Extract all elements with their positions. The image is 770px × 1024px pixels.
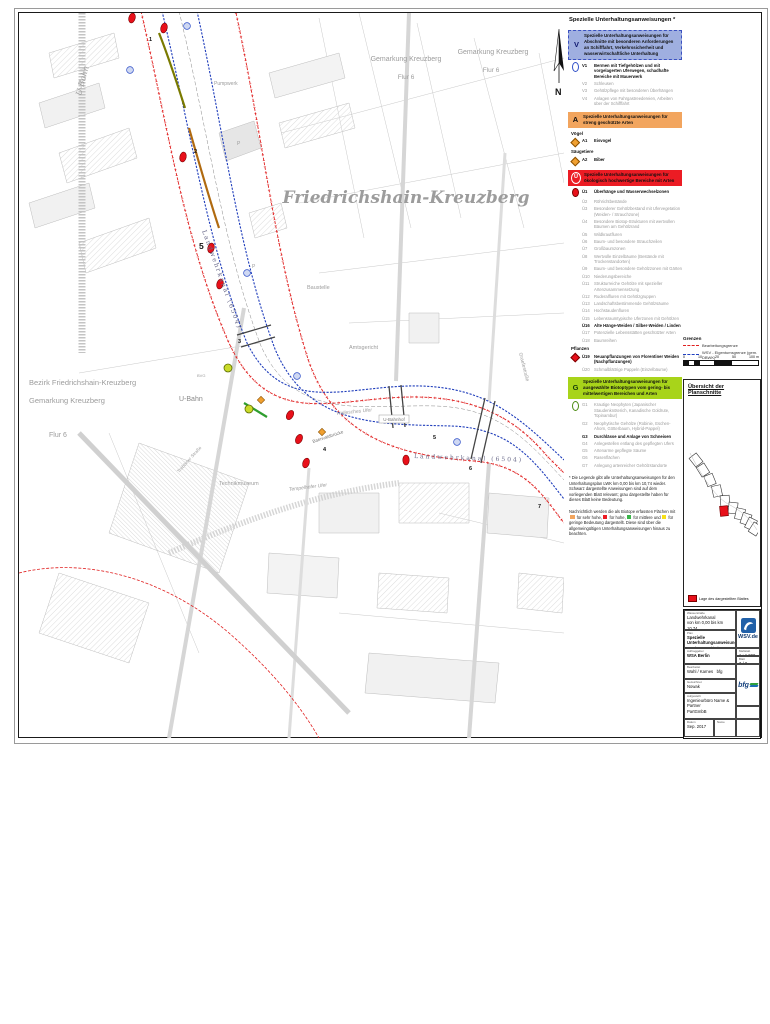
gemarkung-label: Gemarkung Kreuzberg — [29, 396, 105, 405]
km-number-large: 5 — [199, 241, 204, 251]
legend-item: G6Rasenflächen — [582, 455, 682, 461]
legend-item: G3Durchlässe und Anlage von Schneisen — [582, 434, 682, 440]
legend-item: Ü17Potenzielle Lebensstätten geschützter… — [582, 330, 682, 336]
street-label: Hallesches Ufer — [337, 407, 373, 417]
wsv-logo-cell: WSV.de — [736, 610, 760, 648]
gemarkung-label: Gemarkung Kreuzberg — [371, 56, 442, 63]
legend-section-v-banner: V Spezielle Unterhaltungsanweisungen für… — [568, 30, 682, 60]
ue-marker — [285, 409, 296, 421]
legend-item: Ü9Baum- und besondere Gehölzzonen mit Gä… — [582, 266, 682, 272]
ue-marker — [160, 22, 169, 33]
plants-heading: Pflanzen — [571, 346, 682, 352]
bezirk-label: Bezirk Friedrichshain-Kreuzberg — [29, 378, 136, 387]
red-boundary-line-icon — [683, 345, 699, 346]
biber-marker — [224, 364, 232, 372]
legend-item: G1Krautige Neophyten (Japanischer Staude… — [571, 402, 682, 419]
biber-marker — [245, 405, 253, 413]
red-oval-icon — [571, 189, 580, 197]
flur-label: Flur 6 — [49, 432, 67, 439]
orange-diamond-icon — [571, 138, 580, 146]
km-number: 2 — [194, 149, 197, 155]
empty-cell — [736, 706, 760, 719]
ubahn-label: U-Bahn — [179, 396, 203, 403]
plan-sheet: 1 2 5 3 4 5 6 7 Friedrichshain-Kreuzberg… — [14, 8, 768, 744]
bvg-label: BVG — [197, 373, 205, 378]
legend-item: Ü1Überhänge und Wasserwechselzonen — [571, 189, 682, 197]
technikmuseum-label: Technikmuseum — [219, 481, 259, 487]
name-cell: Name — [714, 719, 736, 737]
blue-ref-marker — [184, 23, 191, 30]
plan-cell: Plan Spezielle Unterhaltungsanweisungen … — [684, 630, 736, 648]
wsv-logo-text: WSV.de — [738, 634, 758, 640]
ubahnhof-box: U-Bahnhof — [379, 415, 409, 423]
legend-item: Ü12Ruderalfluren mit Gehölzgruppen — [582, 294, 682, 300]
canal-label: Landwehrkanal (6504) — [200, 229, 243, 330]
legend-item: G2Neophytische Gehölze (Robinie, Eschen-… — [582, 421, 682, 432]
empty-cell — [736, 719, 760, 737]
blue-ref-marker — [127, 67, 134, 74]
parking-label: P — [252, 264, 256, 270]
v-banner-text: Spezielle Unterhaltungsanweisungen für A… — [584, 33, 678, 57]
segment-olive — [159, 33, 185, 108]
scale-bar: 010 2050 100 m — [683, 355, 759, 366]
ubahnhof-label: U-Bahnhof — [383, 417, 405, 422]
a-banner-text: Spezielle Unterhaltungsanweisungen für s… — [583, 114, 679, 126]
legend-item: Ü15Lebensraumtypische Uferzonen mit Gehö… — [582, 316, 682, 322]
green-ellipse-icon — [571, 402, 580, 410]
legend-item: Ü2Röhrichtbestände — [582, 199, 682, 205]
legend-item: Ü4Besondere Biotop-Strukturen mit wertvo… — [582, 219, 682, 230]
grenzen-title: Grenzen — [683, 336, 761, 341]
legend-item: Ü5Wildkrautfluren — [582, 232, 682, 238]
ue-banner-text: Spezielle Unterhaltungsanweisungen für ö… — [584, 172, 679, 184]
current-sheet-marker — [719, 506, 728, 517]
ue-section-icon: Ü — [571, 172, 581, 184]
g-section-icon: G — [571, 383, 580, 394]
legend-item: G5Artenarme gepflegte Säume — [582, 448, 682, 454]
red-chip-icon — [603, 515, 608, 519]
a-section-icon: A — [571, 114, 580, 125]
baustelle-label: Baustelle — [307, 285, 330, 291]
flur-label: Flur 6 — [398, 74, 415, 81]
legend-item: Ü19Neuanpflanzungen von Florentiner Weid… — [571, 354, 682, 365]
edited-cell: Bearbeitet Wahl / Karnes bfg — [684, 664, 736, 679]
km-number: 7 — [538, 504, 541, 510]
legend-section-g-banner: G Spezielle Unterhaltungsanweisungen für… — [568, 377, 682, 399]
district-label: Friedrichshain-Kreuzberg — [282, 188, 530, 208]
v-section-icon: V — [572, 39, 581, 50]
waterway-cell: Wasserstraße Landwehrkanal von km 0,00 b… — [684, 610, 736, 630]
bfg-logo-cell: bfg — [736, 664, 760, 706]
legend-item: Ü18Baumreihen — [582, 338, 682, 344]
overview-minimap — [684, 398, 758, 583]
legend-item: G7Anlegung artenreicher Gehölzstandorte — [582, 463, 682, 469]
legend-title: Spezielle Unterhaltungsanweisungen * — [569, 17, 682, 25]
a-group-heading: Vögel — [571, 131, 682, 137]
blue-ref-marker — [294, 373, 301, 380]
scale-cell: Maßstab 1 : 1.000 — [736, 648, 760, 656]
red-diamond-icon — [571, 354, 580, 362]
ue-marker — [179, 151, 187, 162]
ue-marker — [301, 457, 310, 469]
eisvogel-marker — [257, 396, 264, 403]
km-number: 3 — [238, 339, 241, 345]
canal-edge-south — [197, 13, 564, 499]
north-arrow: N — [554, 29, 564, 97]
right-column: Grenzen Bearbeitungsgrenze WSV - Eigentu… — [683, 13, 761, 737]
drawn-cell: Gezeichnet Nowak — [684, 679, 736, 693]
green-chip-icon — [627, 515, 632, 519]
canal-label: Landwehrkanal (6504) — [414, 453, 523, 464]
firm-cell: Aufgestellt Ingenieurbüro Name & Partner… — [684, 693, 736, 719]
wsv-logo-icon — [741, 618, 756, 633]
legend-item: G4Anlegestellen entlang des gepflegten U… — [582, 441, 682, 447]
orange-diamond-icon — [571, 157, 580, 165]
legend-item: Ü14Hochstaudenfluren — [582, 308, 682, 314]
orange-chip-icon — [570, 515, 575, 519]
legend-section-ue-banner: Ü Spezielle Unterhaltungsanweisungen für… — [568, 170, 682, 186]
blue-ref-marker — [454, 439, 461, 446]
legend-item: Ü13Landschaftsbestimmende Gehölzsäume — [582, 301, 682, 307]
legend-item: Ü16Alte Hänge-Weiden / Silber-Weiden / L… — [582, 323, 682, 329]
bridge-label: Baerwaldbrücke — [312, 429, 345, 444]
legend-item: A1Eisvogel — [571, 138, 682, 146]
km-number: 5 — [433, 435, 436, 441]
legend-section-a-banner: A Spezielle Unterhaltungsanweisungen für… — [568, 112, 682, 128]
legend-item: Ü10Niederungsbereiche — [582, 274, 682, 280]
legend-item: Ü8Wertvolle Einzelbäume (Bestände mit Tr… — [582, 254, 682, 265]
bfg-logo-text: bfg — [738, 682, 749, 689]
legend-item: V4Anlagen von Fahrgastreedereien, Arbeit… — [582, 96, 682, 107]
segment-brown — [189, 128, 219, 228]
a-group-heading: Säugetiere — [571, 149, 682, 155]
sheet-cell: Blatt 3 / 8 — [736, 656, 760, 664]
legend-item: Ü6Baum- und besondere Strauchzeilen — [582, 239, 682, 245]
legend-item: A2Biber — [571, 157, 682, 165]
red-sheet-chip-icon — [688, 595, 697, 602]
street-label: Graefestraße — [517, 352, 530, 382]
blue-ref-marker — [244, 270, 251, 277]
legend-item: V3Gehölzpflege mit besonderen Überhängen — [582, 88, 682, 94]
legend-item: Ü7Großbaumzonen — [582, 246, 682, 252]
km-number: 6 — [469, 466, 472, 472]
north-label: N — [555, 87, 562, 97]
ue-marker — [128, 13, 137, 24]
legend-note: Nachrichtlich werden die als Biotope erf… — [569, 509, 681, 537]
legend-item: V2Schleusen — [582, 81, 682, 87]
title-block: Wasserstraße Landwehrkanal von km 0,00 b… — [683, 609, 761, 739]
overview-note: Lage des dargestellten Blattes — [688, 595, 749, 602]
legend: Spezielle Unterhaltungsanweisungen * V S… — [568, 15, 682, 731]
km-number: 4 — [323, 447, 327, 453]
km-number: 1 — [149, 37, 152, 43]
map-canvas: 1 2 5 3 4 5 6 7 Friedrichshain-Kreuzberg… — [19, 13, 564, 738]
map-labels: Friedrichshain-Kreuzberg Gemarkung Kreuz… — [29, 49, 530, 493]
plan-frame: 1 2 5 3 4 5 6 7 Friedrichshain-Kreuzberg… — [18, 12, 762, 738]
scale-bar-segments — [683, 360, 759, 366]
gemarkung-label: Gemarkung Kreuzberg — [458, 49, 529, 56]
overview-title: Übersicht der Planschnitte — [688, 384, 756, 396]
amtsgericht-label: Amtsgericht — [349, 345, 379, 351]
ue-marker — [294, 433, 304, 445]
legend-footnote: * Die Legende gibt alle Unterhaltungsanw… — [569, 475, 681, 503]
grenzen-row: Bearbeitungsgrenze — [683, 343, 761, 348]
date-cell: Datum Sep. 2017 — [684, 719, 714, 737]
flur-label: Flur 6 — [483, 67, 500, 74]
overview-panel: Übersicht der Planschnitte Lage des darg… — [683, 379, 761, 607]
client-cell: Auftraggeber WSA Berlin — [684, 648, 736, 664]
pumpwerk-label: Pumpwerk — [214, 81, 238, 87]
bfg-logo-icon — [750, 683, 758, 688]
yellow-chip-icon — [662, 515, 667, 519]
legend-item: Ü3Besonderer Gehölzbestand mit Uferveget… — [582, 206, 682, 217]
ue-marker — [403, 455, 409, 465]
g-banner-text: Spezielle Unterhaltungsanweisungen für a… — [583, 379, 679, 397]
legend-item: Ü11Strukturreiche Gehölze mit spezieller… — [582, 281, 682, 292]
legend-item: Ü20Schmalblättrige Pappeln (Einzelbäume) — [582, 367, 682, 373]
blue-ellipse-icon — [571, 63, 580, 71]
legend-item: V1 Bermen mit Tiefgehölzen und mit vorge… — [571, 63, 682, 80]
